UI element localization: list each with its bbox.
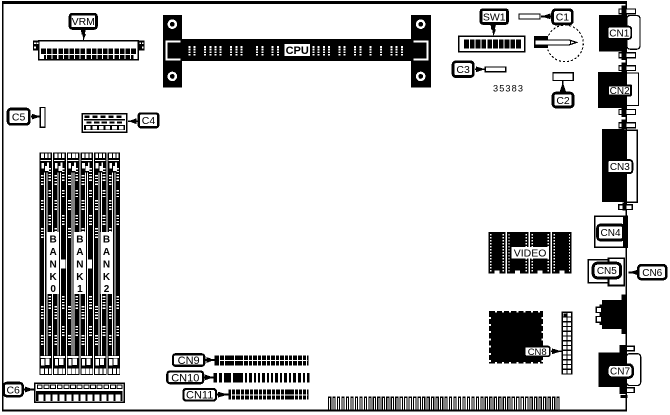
svg-text:CN11: CN11 — [186, 390, 213, 402]
svg-text:K: K — [49, 272, 57, 283]
svg-text:C1: C1 — [556, 12, 570, 24]
svg-text:A: A — [76, 247, 83, 258]
svg-text:CN6: CN6 — [642, 268, 662, 279]
svg-text:CN3: CN3 — [610, 162, 630, 173]
svg-text:CN4: CN4 — [601, 228, 621, 239]
svg-text:CN10: CN10 — [171, 372, 199, 384]
svg-text:B: B — [103, 235, 110, 246]
svg-text:CN5: CN5 — [597, 266, 617, 277]
svg-text:CN9: CN9 — [178, 355, 200, 367]
svg-text:CN7: CN7 — [610, 367, 630, 378]
svg-text:C6: C6 — [6, 384, 20, 396]
svg-text:A: A — [103, 247, 110, 258]
svg-text:C5: C5 — [12, 111, 26, 123]
svg-text:K: K — [76, 272, 84, 283]
svg-text:SW1: SW1 — [483, 11, 506, 23]
svg-text:VIDEO: VIDEO — [514, 247, 547, 259]
svg-text:C2: C2 — [556, 95, 570, 107]
svg-text:CN1: CN1 — [609, 28, 629, 39]
svg-text:N: N — [103, 259, 110, 270]
svg-text:VRM: VRM — [72, 16, 95, 28]
svg-text:B: B — [76, 235, 83, 246]
svg-text:CN8: CN8 — [528, 347, 547, 358]
svg-text:N: N — [49, 259, 56, 270]
svg-text:N: N — [76, 259, 83, 270]
svg-text:2: 2 — [104, 284, 110, 295]
svg-text:0: 0 — [50, 284, 56, 295]
svg-text:35383: 35383 — [493, 83, 524, 93]
svg-text:1: 1 — [77, 284, 83, 295]
svg-text:A: A — [49, 247, 56, 258]
svg-text:CN2: CN2 — [610, 86, 630, 97]
svg-text:CPU: CPU — [286, 45, 309, 57]
svg-text:C3: C3 — [456, 64, 470, 76]
svg-text:C4: C4 — [142, 115, 156, 127]
svg-text:B: B — [49, 235, 56, 246]
svg-text:K: K — [103, 272, 111, 283]
